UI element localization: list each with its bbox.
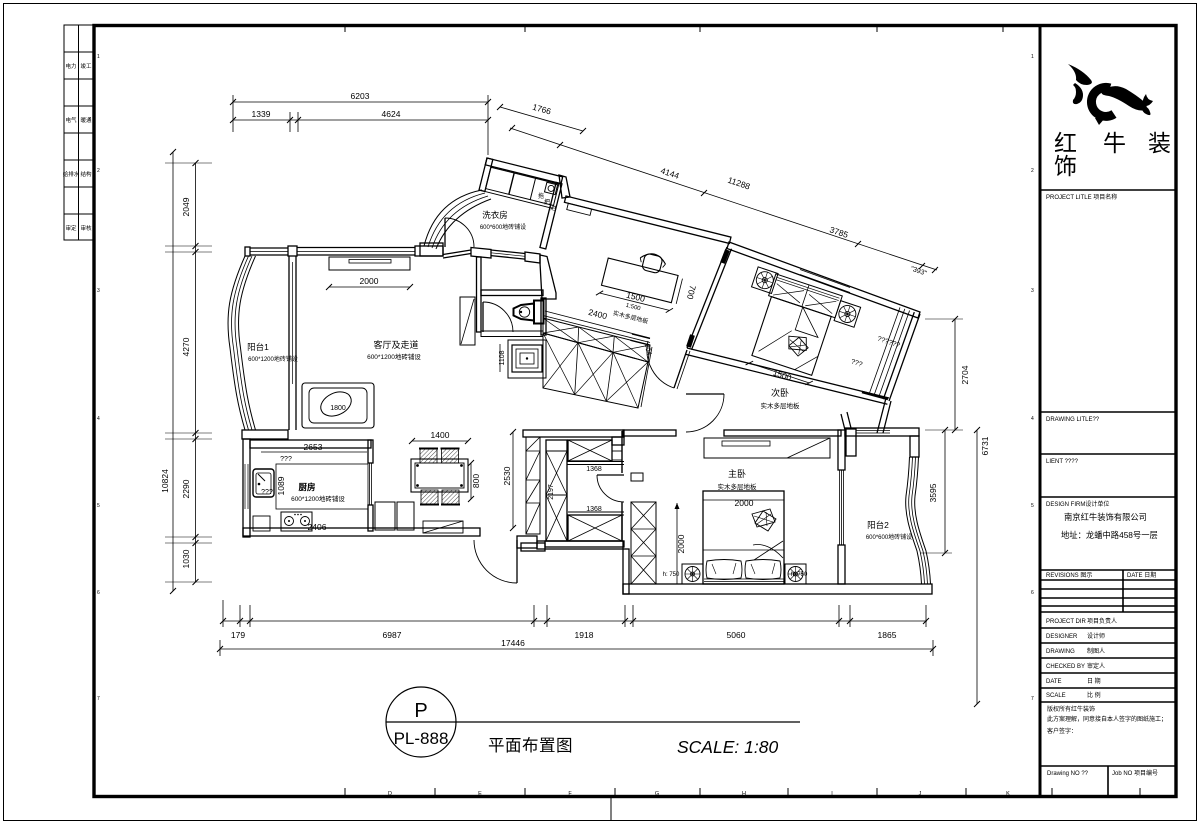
svg-text:此方案理解，同意接自本人签字的图纸施工；: 此方案理解，同意接自本人签字的图纸施工； [1047, 715, 1167, 723]
svg-text:PROJECT LITLE 项目名称: PROJECT LITLE 项目名称 [1046, 193, 1117, 201]
svg-text:3: 3 [1031, 288, 1034, 294]
svg-text:2000: 2000 [735, 498, 754, 508]
svg-text:K: K [1006, 791, 1010, 797]
svg-text:h: 750: h: 750 [791, 572, 808, 578]
svg-text:1918: 1918 [575, 630, 594, 640]
svg-text:P: P [414, 700, 427, 722]
svg-text:1368: 1368 [586, 506, 602, 513]
svg-text:H: H [742, 791, 746, 797]
svg-text:审定人: 审定人 [1087, 662, 1105, 670]
svg-text:4: 4 [97, 416, 100, 422]
svg-text:10824: 10824 [160, 469, 170, 493]
svg-text:厨房: 厨房 [298, 482, 315, 492]
svg-text:REVISIONS 图示: REVISIONS 图示 [1046, 572, 1092, 579]
svg-text:客厅及走道: 客厅及走道 [373, 339, 418, 350]
svg-text:1339: 1339 [252, 109, 271, 119]
svg-text:竣工: 竣工 [80, 62, 92, 70]
svg-text:6731: 6731 [980, 436, 990, 455]
svg-text:Drawing NO ??: Drawing NO ?? [1047, 771, 1089, 777]
svg-text:3595: 3595 [928, 483, 938, 502]
svg-text:2: 2 [97, 168, 100, 174]
svg-text:J: J [919, 791, 922, 797]
svg-text:600*1200地砖铺设: 600*1200地砖铺设 [248, 355, 298, 363]
svg-text:实木多层地板: 实木多层地板 [761, 401, 801, 410]
svg-text:DATE: DATE [1046, 679, 1062, 685]
svg-text:PROJECT DIR: PROJECT DIR [1046, 619, 1087, 625]
svg-text:5: 5 [97, 503, 100, 509]
svg-text:6987: 6987 [383, 630, 402, 640]
svg-text:6203: 6203 [351, 91, 370, 101]
svg-text:1: 1 [97, 54, 100, 60]
svg-text:电气: 电气 [65, 116, 77, 124]
svg-text:DESIGN FIRM设计单位: DESIGN FIRM设计单位 [1046, 500, 1109, 508]
svg-text:2406: 2406 [308, 522, 327, 532]
svg-text:阳台2: 阳台2 [867, 520, 889, 530]
svg-text:版权所有红牛装饰: 版权所有红牛装饰 [1047, 705, 1095, 713]
svg-text:D: D [388, 791, 392, 797]
svg-text:2197: 2197 [548, 484, 555, 500]
svg-text:1800: 1800 [330, 405, 346, 412]
svg-text:E: E [478, 791, 482, 797]
svg-text:???: ??? [261, 489, 273, 496]
svg-text:DESIGNER: DESIGNER [1046, 634, 1078, 640]
svg-text:设计师: 设计师 [1087, 632, 1105, 640]
svg-text:4624: 4624 [382, 109, 401, 119]
svg-text:2290: 2290 [181, 479, 191, 498]
svg-text:结构: 结构 [80, 170, 92, 178]
svg-text:179: 179 [231, 630, 245, 640]
svg-text:实木多层地板: 实木多层地板 [718, 482, 758, 491]
svg-text:制图人: 制图人 [1087, 647, 1105, 655]
svg-text:5060: 5060 [727, 630, 746, 640]
svg-text:阳台1: 阳台1 [247, 342, 269, 352]
svg-text:池: 池 [550, 204, 556, 212]
svg-text:1: 1 [1031, 54, 1034, 60]
svg-text:2704: 2704 [960, 365, 970, 384]
svg-text:SCALE: SCALE [1046, 693, 1066, 699]
svg-text:3: 3 [97, 288, 100, 294]
svg-text:项目负责人: 项目负责人 [1087, 617, 1117, 625]
svg-text:???: ??? [280, 456, 292, 463]
svg-text:给排水: 给排水 [63, 170, 80, 178]
svg-text:600*1200地砖铺设: 600*1200地砖铺设 [291, 494, 345, 503]
svg-text:比 例: 比 例 [1087, 691, 1101, 699]
svg-text:洗衣房: 洗衣房 [482, 210, 508, 220]
svg-text:2000: 2000 [676, 534, 686, 553]
svg-text:日 期: 日 期 [1087, 677, 1101, 685]
svg-text:审核: 审核 [80, 224, 92, 232]
svg-text:2049: 2049 [181, 197, 191, 216]
svg-text:7: 7 [97, 696, 100, 702]
svg-text:审定: 审定 [65, 224, 77, 232]
svg-text:5: 5 [1031, 503, 1034, 509]
svg-text:2: 2 [1031, 168, 1034, 174]
svg-text:Job NO 项目编号: Job NO 项目编号 [1112, 769, 1158, 777]
svg-text:600*600地砖铺设: 600*600地砖铺设 [480, 223, 526, 231]
svg-text:DATE 日期: DATE 日期 [1127, 571, 1156, 579]
svg-text:次卧: 次卧 [771, 387, 789, 398]
svg-text:平面布置图: 平面布置图 [488, 736, 573, 755]
svg-text:4270: 4270 [181, 337, 191, 356]
svg-text:1089: 1089 [276, 476, 286, 495]
svg-text:SCALE: 1:80: SCALE: 1:80 [677, 737, 778, 757]
svg-text:6: 6 [97, 590, 100, 596]
svg-text:拖: 拖 [538, 192, 544, 200]
svg-text:暖通: 暖通 [80, 116, 92, 124]
svg-text:17446: 17446 [501, 638, 525, 648]
svg-text:1108: 1108 [499, 350, 506, 365]
svg-text:CHECKED BY: CHECKED BY [1046, 664, 1085, 670]
svg-text:7: 7 [1031, 696, 1034, 702]
svg-text:G: G [655, 791, 659, 797]
svg-text:PL-888: PL-888 [394, 729, 449, 748]
svg-text:800: 800 [471, 474, 481, 488]
svg-text:2000: 2000 [360, 276, 379, 286]
svg-text:1030: 1030 [181, 549, 191, 568]
svg-text:600*1200地砖铺设: 600*1200地砖铺设 [367, 352, 421, 361]
svg-text:2530: 2530 [502, 466, 512, 485]
svg-text:1865: 1865 [878, 630, 897, 640]
svg-text:1368: 1368 [586, 466, 602, 473]
svg-text:6: 6 [1031, 590, 1034, 596]
svg-text:2653: 2653 [304, 442, 323, 452]
svg-text:南京红牛装饰有限公司: 南京红牛装饰有限公司 [1064, 512, 1147, 522]
svg-text:电力: 电力 [65, 62, 76, 70]
svg-text:1400: 1400 [431, 430, 450, 440]
svg-text:4: 4 [1031, 416, 1034, 422]
svg-text:装: 装 [1148, 130, 1171, 156]
svg-text:600*600地砖铺设: 600*600地砖铺设 [866, 533, 912, 541]
svg-text:LIENT ????: LIENT ???? [1046, 459, 1079, 465]
svg-text:牛: 牛 [1103, 130, 1126, 156]
svg-text:主卧: 主卧 [728, 468, 746, 479]
svg-text:饰: 饰 [1054, 153, 1077, 179]
svg-text:DRAWING LITLE??: DRAWING LITLE?? [1046, 417, 1100, 423]
svg-text:客户签字：: 客户签字： [1047, 727, 1077, 735]
svg-text:地址：龙蟠中路458号一层: 地址：龙蟠中路458号一层 [1061, 530, 1158, 540]
svg-text:把: 把 [544, 198, 550, 206]
svg-text:DRAWING: DRAWING [1046, 649, 1075, 655]
